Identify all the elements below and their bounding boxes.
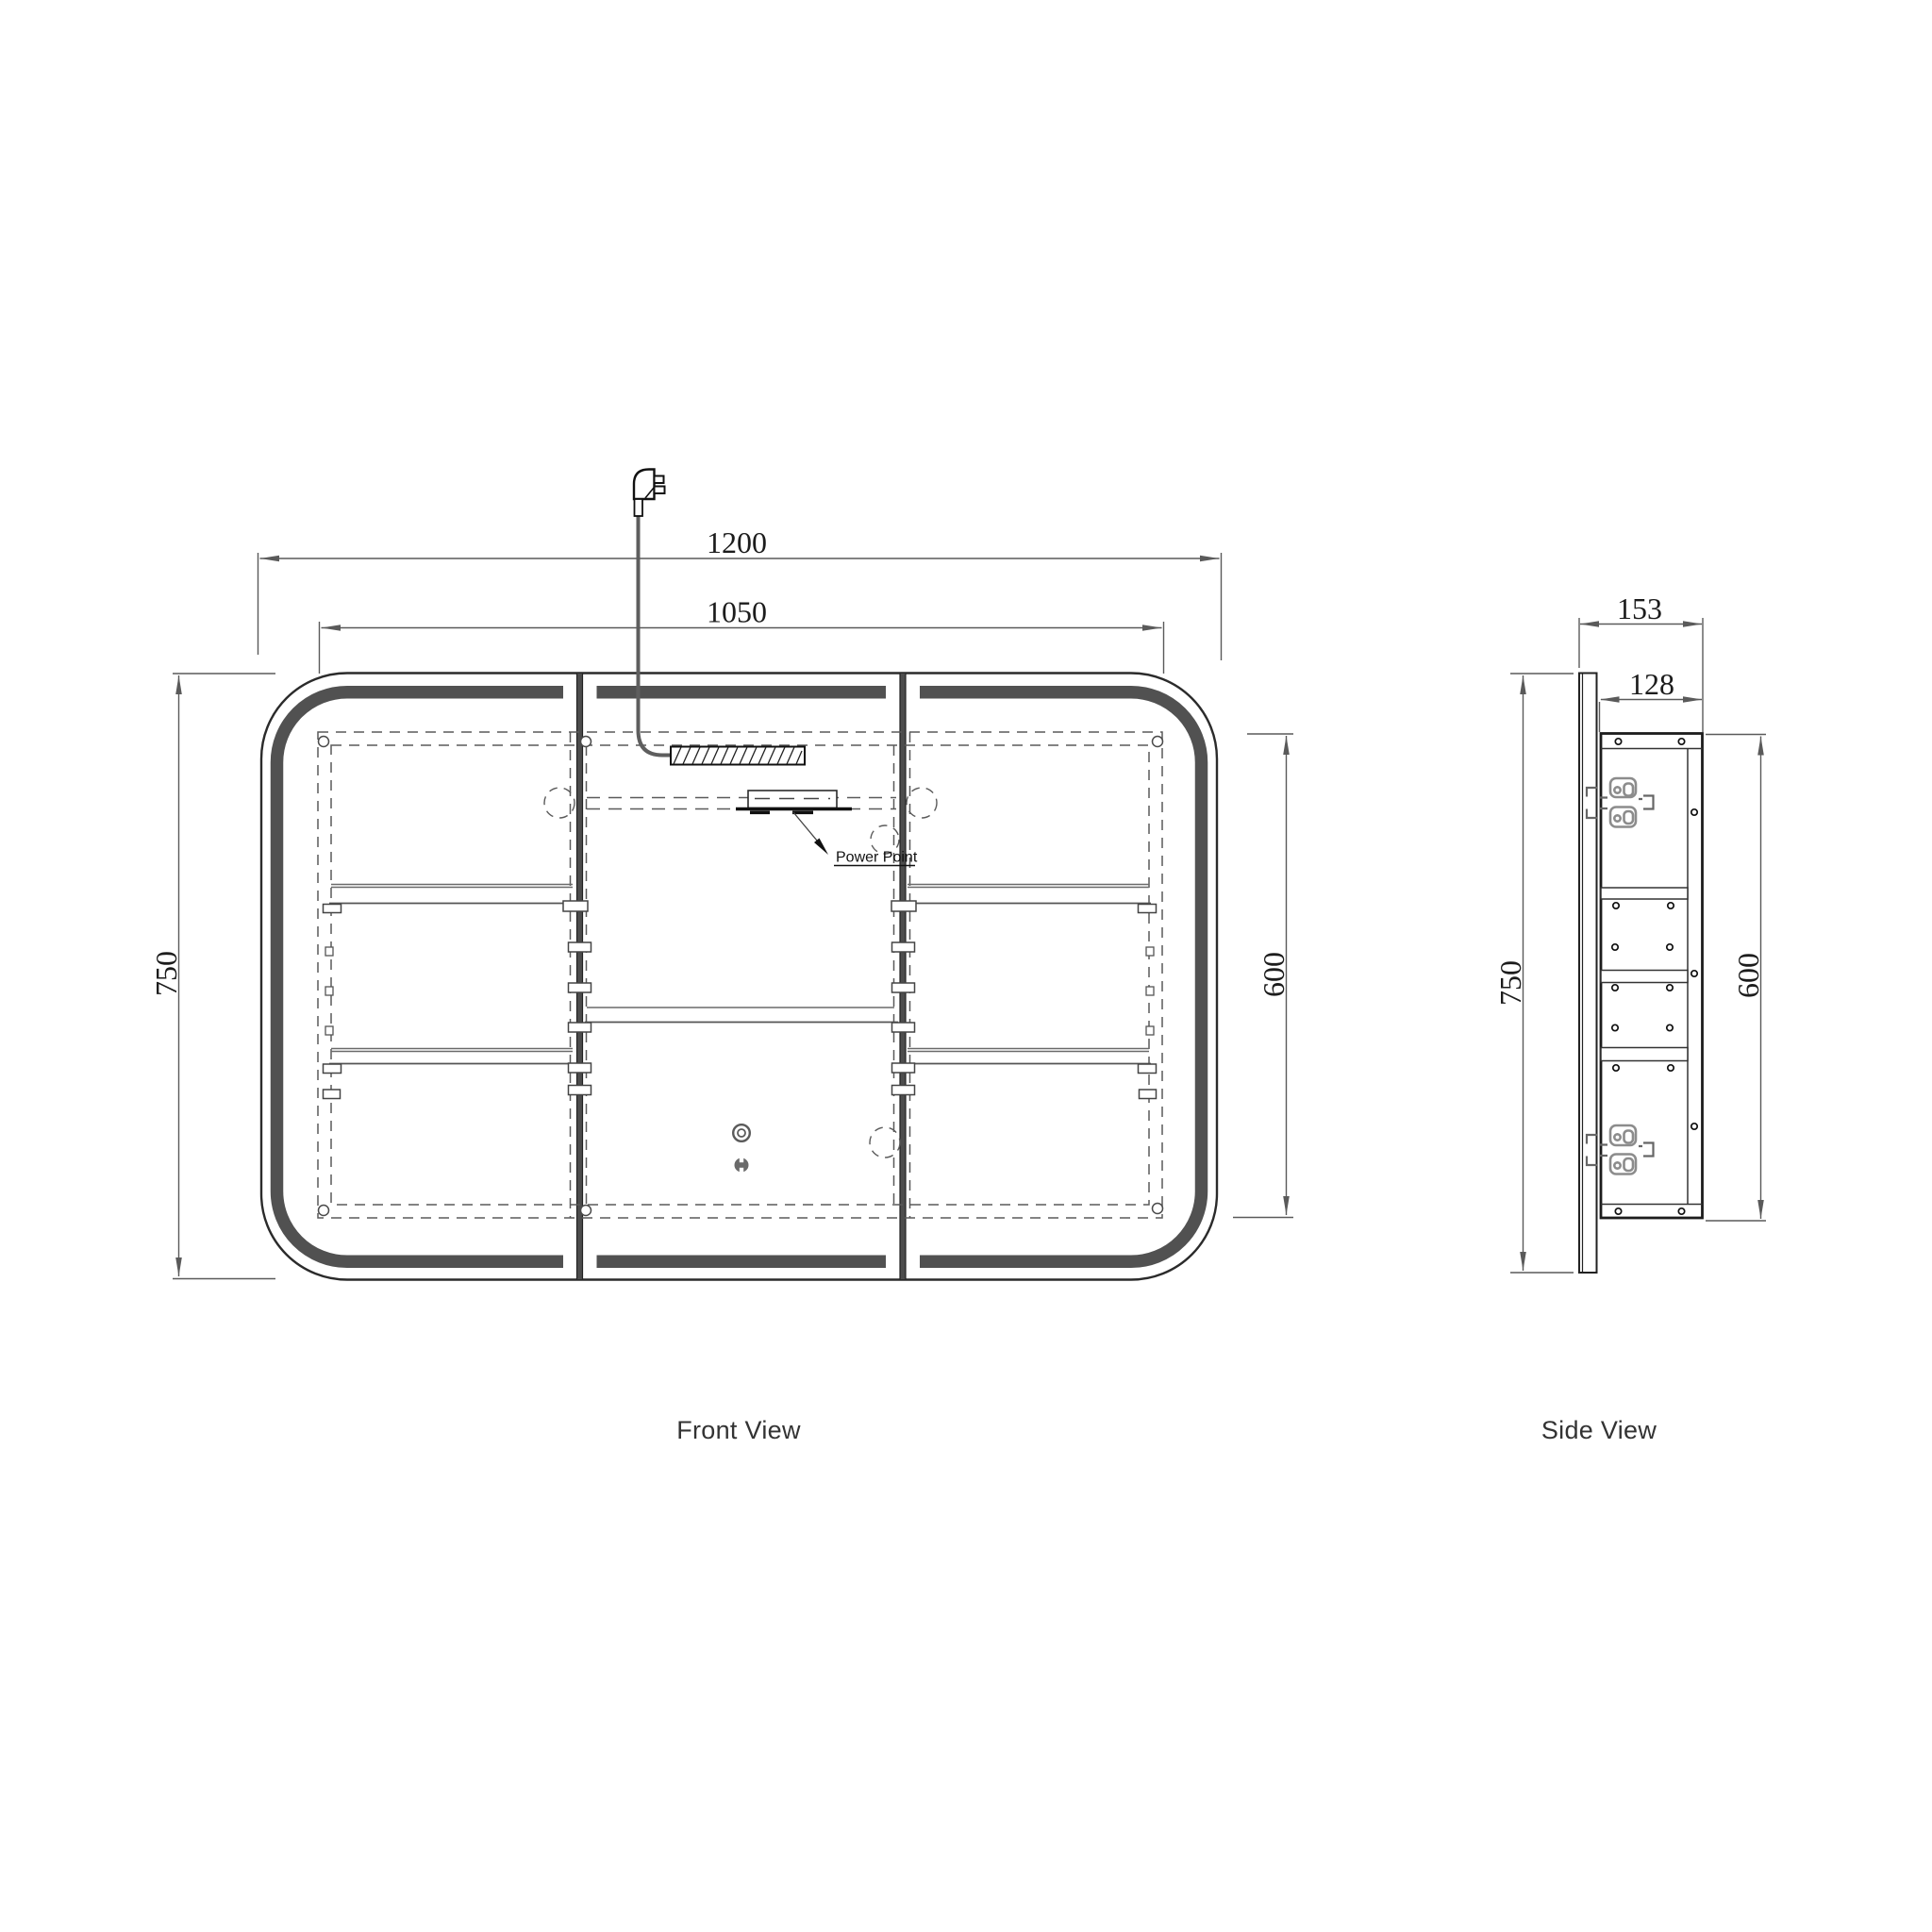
svg-text:Front View: Front View — [676, 1416, 801, 1444]
svg-text:750: 750 — [149, 951, 183, 996]
svg-text:600: 600 — [1731, 953, 1765, 998]
svg-text:750: 750 — [1493, 960, 1527, 1006]
svg-text:128: 128 — [1629, 667, 1674, 701]
svg-text:153: 153 — [1617, 591, 1662, 625]
svg-text:1050: 1050 — [707, 595, 767, 629]
svg-text:Side View: Side View — [1541, 1416, 1657, 1444]
svg-text:1200: 1200 — [707, 525, 767, 559]
svg-text:Power Point: Power Point — [836, 850, 918, 866]
svg-text:600: 600 — [1257, 952, 1291, 997]
